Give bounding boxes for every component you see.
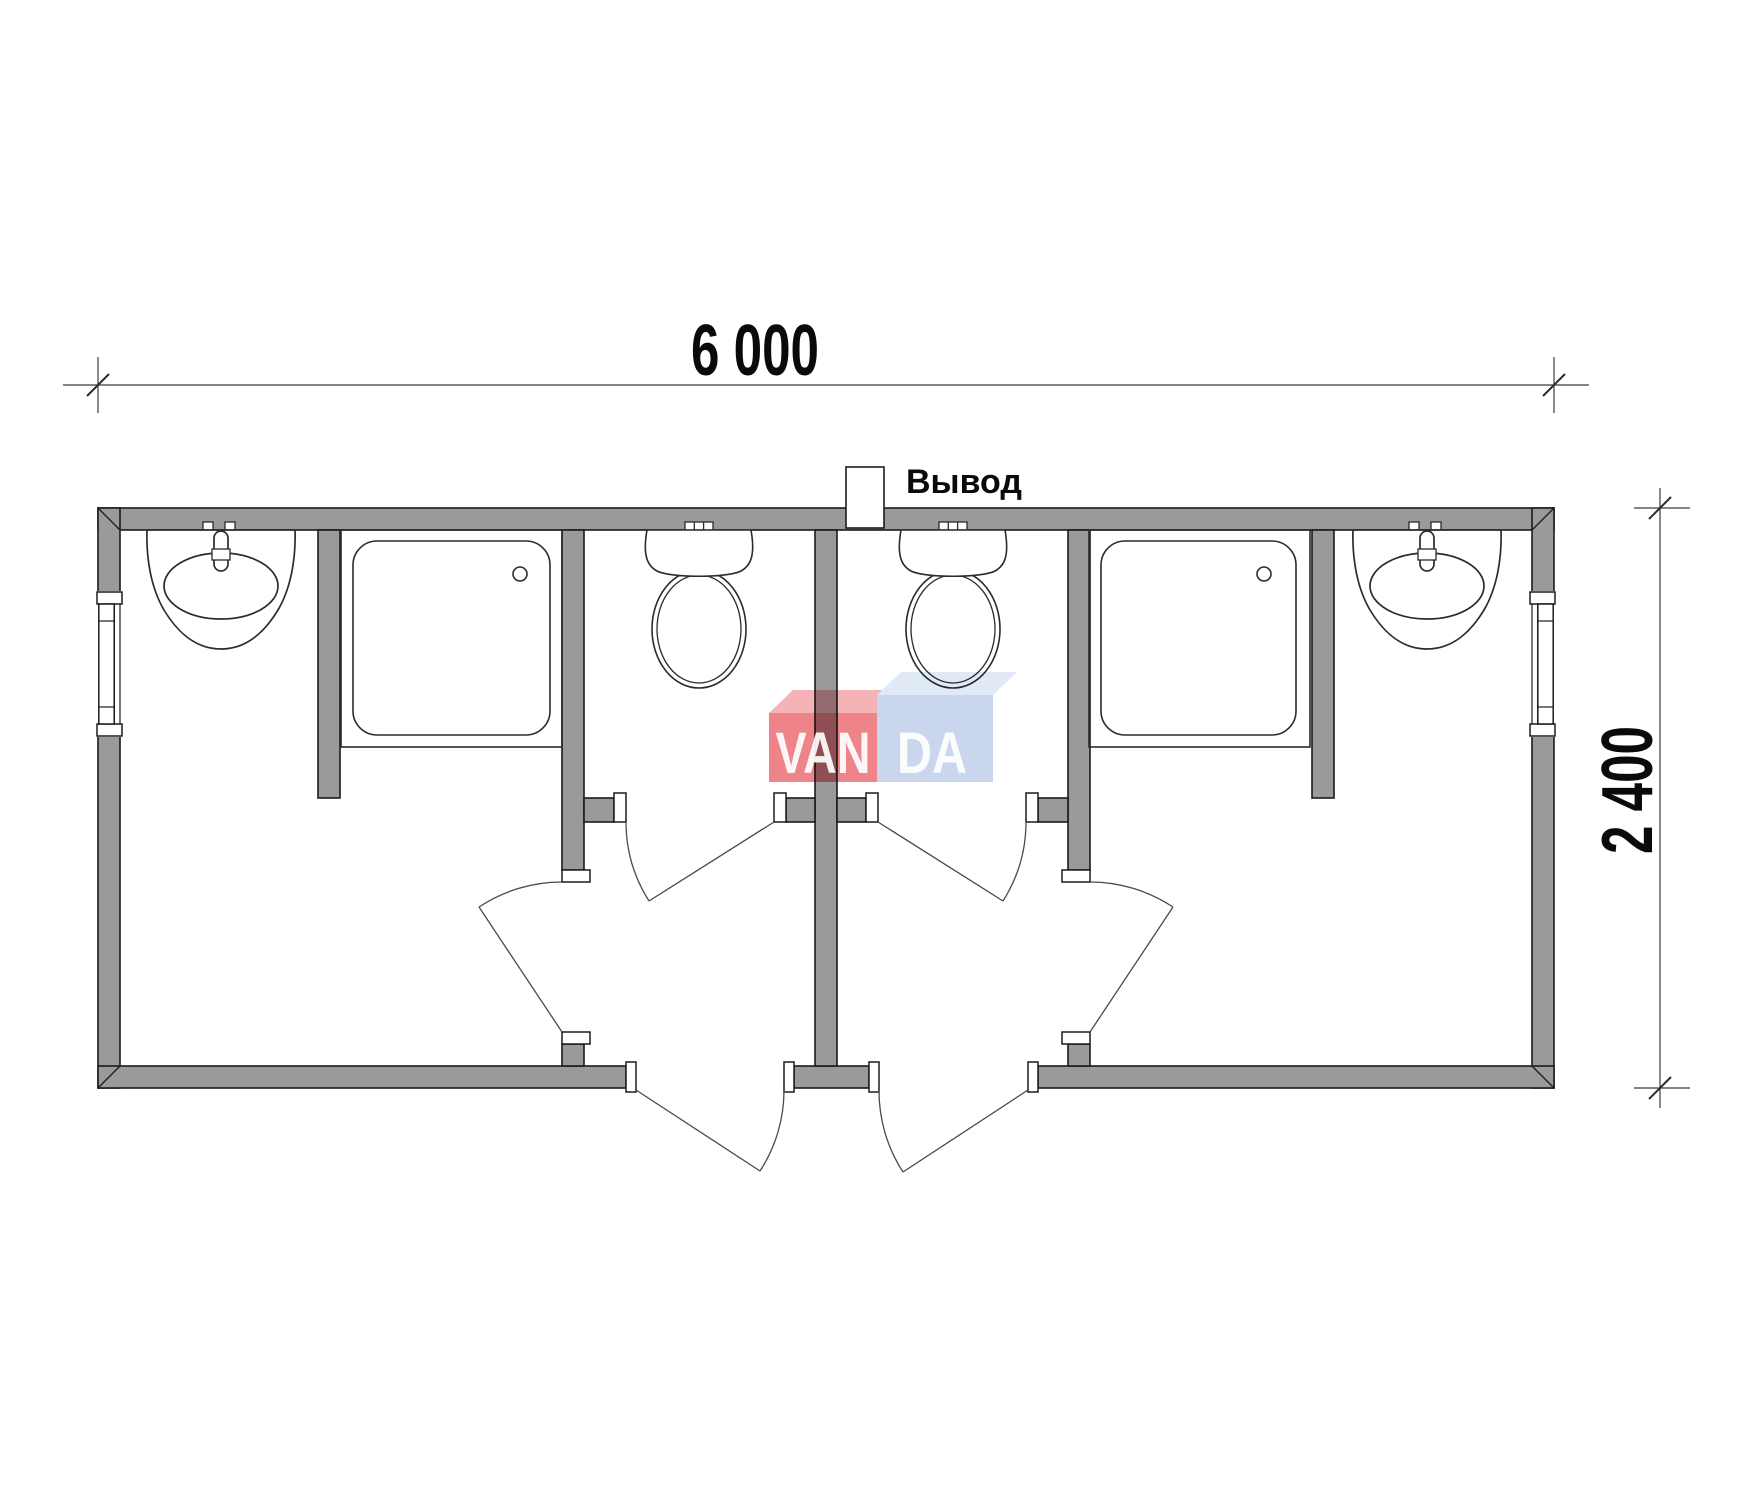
door-swing-arc <box>760 1090 784 1171</box>
door-wc-right <box>878 822 1026 901</box>
toilet-bowl-outer <box>652 570 746 688</box>
watermark-blue-top-face <box>877 672 1017 695</box>
water-supply-point <box>1409 522 1419 530</box>
wall-top <box>98 508 1554 530</box>
wall-right-room-west-upper <box>1068 530 1090 870</box>
wall-shower-stub-right <box>1312 530 1334 798</box>
toilet-tank <box>899 530 1006 576</box>
toilet-tank <box>645 530 752 576</box>
door-jamb <box>869 1062 879 1092</box>
window-jamb <box>1530 724 1555 736</box>
wall-bottom-left-segment <box>98 1066 626 1088</box>
window-jamb <box>97 724 122 736</box>
toilet-left <box>645 522 752 688</box>
door-jamb <box>1028 1062 1038 1092</box>
dimension-height-label: 2 400 <box>1588 726 1668 854</box>
window-left <box>97 591 123 737</box>
dimension-top: 6 000 <box>63 311 1589 413</box>
window-frame <box>1538 604 1553 724</box>
shower-basin <box>353 541 550 735</box>
shower-drain <box>1257 567 1271 581</box>
door-leaf <box>903 1090 1028 1172</box>
wall-right-room-west-lower <box>1068 1044 1090 1066</box>
watermark-logo: VAN DA <box>769 672 1017 786</box>
shower-enclosure <box>341 530 562 747</box>
wall-wc-left-south-a <box>584 798 614 822</box>
door-jamb <box>774 793 786 822</box>
door-swing-arc <box>1003 823 1026 901</box>
dimension-width-label: 6 000 <box>691 311 819 391</box>
shower-basin <box>1101 541 1296 735</box>
wall-wc-right-south-b <box>1038 798 1068 822</box>
shower-tray-right <box>1089 530 1310 747</box>
cistern-connection <box>685 522 713 530</box>
wall-wc-right-south-a <box>837 798 866 822</box>
washbasin-left <box>147 522 295 649</box>
wall-bottom-center-segment <box>794 1066 869 1088</box>
wall-left-room-east-upper <box>562 530 584 870</box>
shower-enclosure <box>1089 530 1310 747</box>
door-jamb <box>1026 793 1038 822</box>
door-jamb <box>614 793 626 822</box>
faucet-handle <box>1418 549 1436 560</box>
door-right-room <box>1090 882 1173 1032</box>
door-jamb <box>866 793 878 822</box>
door-entrance-right <box>879 1090 1028 1172</box>
watermark-text-right: DA <box>897 721 967 786</box>
wall-central <box>815 530 837 1066</box>
door-leaf <box>1090 907 1173 1032</box>
walls <box>98 508 1554 1088</box>
water-supply-point <box>1431 522 1441 530</box>
watermark-text-left: VAN <box>776 721 871 786</box>
water-supply-point <box>203 522 213 530</box>
wall-shower-stub-left <box>318 530 340 798</box>
door-leaf <box>479 907 562 1032</box>
door-wc-left <box>626 822 774 901</box>
door-swing-arc <box>879 1090 903 1172</box>
faucet-handle <box>212 549 230 560</box>
window-right <box>1530 591 1556 737</box>
door-jamb <box>1062 1032 1090 1044</box>
window-frame <box>99 604 114 724</box>
shower-drain <box>513 567 527 581</box>
outlet-label: Вывод <box>906 463 1022 501</box>
plan-canvas: 6 000 2 400 Вывод VAN DA <box>0 0 1763 1487</box>
toilet-right <box>899 522 1006 688</box>
door-swing-arc <box>626 823 649 901</box>
door-jamb <box>562 1032 590 1044</box>
door-jamb <box>626 1062 636 1092</box>
wall-left-room-east-lower <box>562 1044 584 1066</box>
utility-outlet-box <box>846 467 884 528</box>
door-leaf <box>636 1090 760 1171</box>
wall-bottom-right-segment <box>1038 1066 1554 1088</box>
window-jamb <box>1530 592 1555 604</box>
door-jamb <box>784 1062 794 1092</box>
door-left-room <box>479 882 562 1032</box>
water-supply-point <box>225 522 235 530</box>
toilet-bowl-outer <box>906 570 1000 688</box>
window-jamb <box>97 592 122 604</box>
door-jamb <box>1062 870 1090 882</box>
door-swing-arc <box>479 882 562 907</box>
shower-tray-left <box>341 530 562 747</box>
door-leaf <box>878 822 1003 901</box>
door-jamb <box>562 870 590 882</box>
door-swing-arc <box>1090 882 1173 907</box>
washbasin-right <box>1353 522 1501 649</box>
cistern-connection <box>939 522 967 530</box>
dimension-right: 2 400 <box>1588 488 1690 1108</box>
floor-plan-page: 6 000 2 400 Вывод VAN DA <box>0 0 1763 1487</box>
door-entrance-left <box>636 1090 784 1171</box>
door-leaf <box>649 822 774 901</box>
wall-wc-left-south-b <box>786 798 815 822</box>
